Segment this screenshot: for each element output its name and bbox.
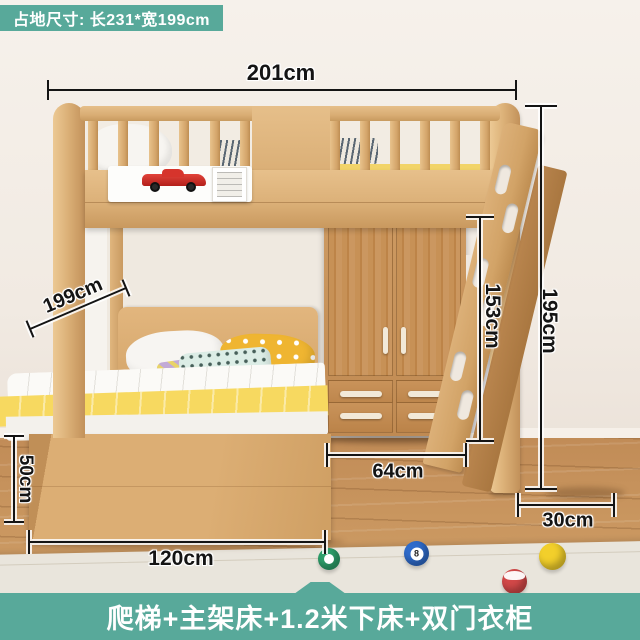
dimension-label-wardrobe-width: 64cm [372,461,423,484]
footprint-size-badge: 占地尺寸: 长231*宽199cm [0,5,223,31]
dimension-label-wardrobe-height: 153cm [480,283,504,348]
dimension-label-bed-box-height: 50cm [14,455,36,504]
product-banner: 爬梯+主架床+1.2米下床+双门衣柜 [0,593,640,640]
dimension-label-lower-bed-width: 120cm [148,547,213,571]
dimension-label-overall-height: 195cm [537,288,561,353]
dimension-label-ladder-clearance: 30cm [542,510,593,533]
dimension-label-top-width: 201cm [247,60,316,86]
product-dimension-diagram: 8 201cm 195cm 153cm 199cm 50cm 64cm 120c… [0,0,640,640]
